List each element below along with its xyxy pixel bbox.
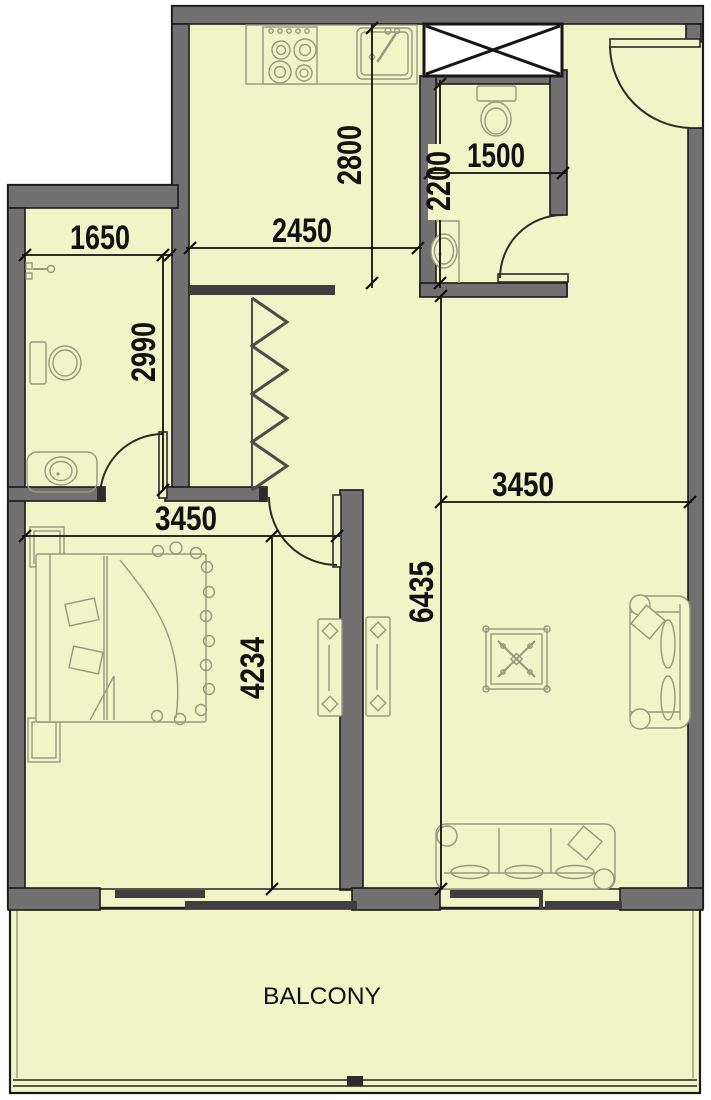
dim-label-4234: 4234 bbox=[234, 637, 272, 699]
balcony-door-panel bbox=[450, 890, 542, 898]
dim-label-3450-living: 3450 bbox=[492, 466, 554, 504]
bathroom-top-door-leaf bbox=[498, 274, 568, 282]
dim-label-2450: 2450 bbox=[272, 212, 332, 250]
dim-label-2800: 2800 bbox=[331, 125, 369, 185]
wall-closet-left bbox=[172, 24, 189, 497]
wall-right bbox=[688, 128, 703, 890]
floorplan-page: BALCONY bbox=[0, 0, 711, 1100]
wall-bottom-right bbox=[620, 888, 703, 910]
wall-end-cap bbox=[259, 487, 267, 502]
wall-bedroom-living-divider bbox=[340, 490, 363, 890]
balcony-door-mullion bbox=[539, 890, 543, 909]
wall-bottom-mid bbox=[352, 888, 440, 910]
nightstand bbox=[28, 718, 60, 762]
tv-unit-bedroom bbox=[318, 619, 342, 716]
dim-label-3450-bedroom: 3450 bbox=[155, 500, 217, 538]
wall-bedroom-top-left bbox=[8, 487, 105, 501]
bedroom-door-leaf bbox=[333, 495, 341, 567]
wall-bottom-left bbox=[8, 888, 100, 910]
vent-shaft bbox=[424, 24, 562, 76]
floorplan-drawing: BALCONY bbox=[0, 0, 711, 1100]
dim-label-2990: 2990 bbox=[125, 322, 163, 382]
stove-icon bbox=[263, 27, 317, 84]
loveseat-sofa bbox=[630, 595, 690, 729]
dim-label-1500: 1500 bbox=[467, 137, 525, 175]
wall-bath-top-right bbox=[550, 70, 567, 215]
double-bed bbox=[36, 542, 215, 725]
balcony-door-panel bbox=[545, 901, 622, 909]
tv-unit-living bbox=[366, 617, 390, 716]
three-seat-sofa bbox=[436, 824, 615, 889]
dim-label-2200: 2200 bbox=[420, 151, 458, 211]
bedroom-window-panel bbox=[115, 890, 205, 898]
balcony-label: BALCONY bbox=[263, 983, 381, 1010]
wall-top bbox=[172, 6, 703, 24]
balcony-railing-joint bbox=[347, 1076, 363, 1086]
dim-label-6435: 6435 bbox=[403, 561, 441, 623]
balcony: BALCONY bbox=[10, 908, 700, 1093]
wall-bath-left-top bbox=[8, 185, 178, 208]
kitchen-sink-icon bbox=[357, 28, 412, 79]
wall-left bbox=[8, 208, 25, 890]
dim-label-1650: 1650 bbox=[70, 219, 130, 257]
wall-kitchen-partition bbox=[189, 285, 335, 295]
bathroom-sink-icon bbox=[431, 234, 457, 268]
entry-door-leaf bbox=[610, 39, 700, 47]
bedroom-window-panel bbox=[185, 901, 357, 909]
